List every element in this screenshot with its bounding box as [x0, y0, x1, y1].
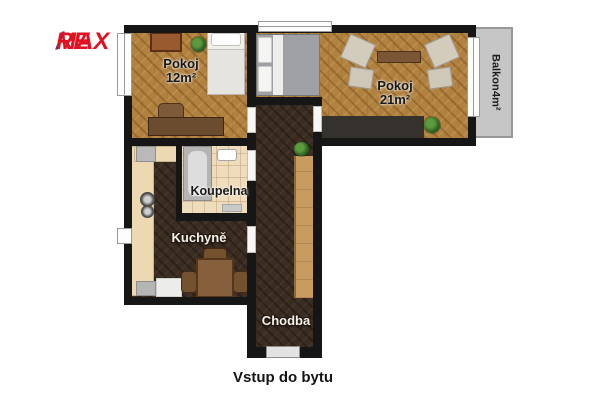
kitchen-counter [130, 146, 154, 296]
logo-max: MAX [56, 28, 109, 56]
room-area: 4m² [489, 91, 502, 111]
door-bedroom-large [313, 106, 322, 132]
room-label-koupelna: Koupelna [191, 184, 248, 198]
bath-mat [222, 204, 242, 212]
door-bathroom [247, 150, 256, 181]
window-frame-line [259, 26, 331, 27]
room-name: Kuchyně [172, 231, 227, 245]
room-label-pokoj-12: Pokoj 12m² [163, 57, 198, 85]
wardrobe [294, 156, 314, 298]
kitchen-sink-appliance [136, 146, 156, 162]
room-name: Balkon [489, 54, 502, 91]
window [117, 228, 132, 244]
room-name: Pokoj [377, 79, 412, 93]
sink [217, 149, 237, 161]
desk [148, 117, 224, 136]
armchair [348, 66, 375, 89]
wall-bathroom-left [176, 144, 182, 218]
dresser [150, 32, 182, 52]
door-bedroom-small [247, 107, 256, 133]
wall-bathroom-bottom [176, 213, 256, 221]
room-label-kuchyne: Kuchyně [172, 231, 227, 245]
room-name: Chodba [262, 314, 310, 328]
wall-bedroom-large-bottom [318, 138, 476, 146]
wall-kitchen-bottom [124, 297, 256, 305]
bed-sheet [273, 35, 283, 95]
plant-icon [294, 142, 309, 156]
room-name: Koupelna [191, 184, 248, 198]
entrance-label: Vstup do bytu [233, 371, 333, 385]
floorplan-image: RE/MAX [0, 0, 600, 412]
pillow [258, 66, 272, 92]
window [117, 33, 132, 96]
kitchen-mat [156, 278, 182, 297]
wall-hall-right [313, 97, 322, 358]
armchair [427, 66, 454, 89]
rug [320, 116, 424, 138]
dining-table [196, 258, 234, 298]
dining-chair [181, 271, 197, 293]
coffee-table [377, 51, 421, 63]
window [258, 21, 332, 32]
pillow [211, 33, 241, 46]
entry-door [266, 346, 300, 358]
room-area: 21m² [377, 93, 412, 107]
room-label-balkon: Balkon 4m² [479, 32, 511, 133]
kitchen-appliance [136, 281, 156, 296]
wall-bedroom-small-bottom [124, 138, 256, 146]
room-name: Pokoj [163, 57, 198, 71]
room-area: 12m² [163, 71, 198, 85]
window-frame-line [473, 38, 474, 116]
stove-burner [141, 205, 154, 218]
plant-icon [191, 37, 206, 52]
window-frame-line [124, 34, 125, 95]
pillow [258, 37, 272, 63]
wall-bedroom-large-inner [252, 97, 322, 105]
room-label-pokoj-21: Pokoj 21m² [377, 79, 412, 107]
single-bed [207, 30, 245, 95]
room-label-chodba: Chodba [262, 314, 310, 328]
blanket [208, 49, 244, 94]
double-bed [256, 34, 320, 96]
plant-icon [424, 117, 440, 133]
door-kitchen [247, 226, 256, 253]
